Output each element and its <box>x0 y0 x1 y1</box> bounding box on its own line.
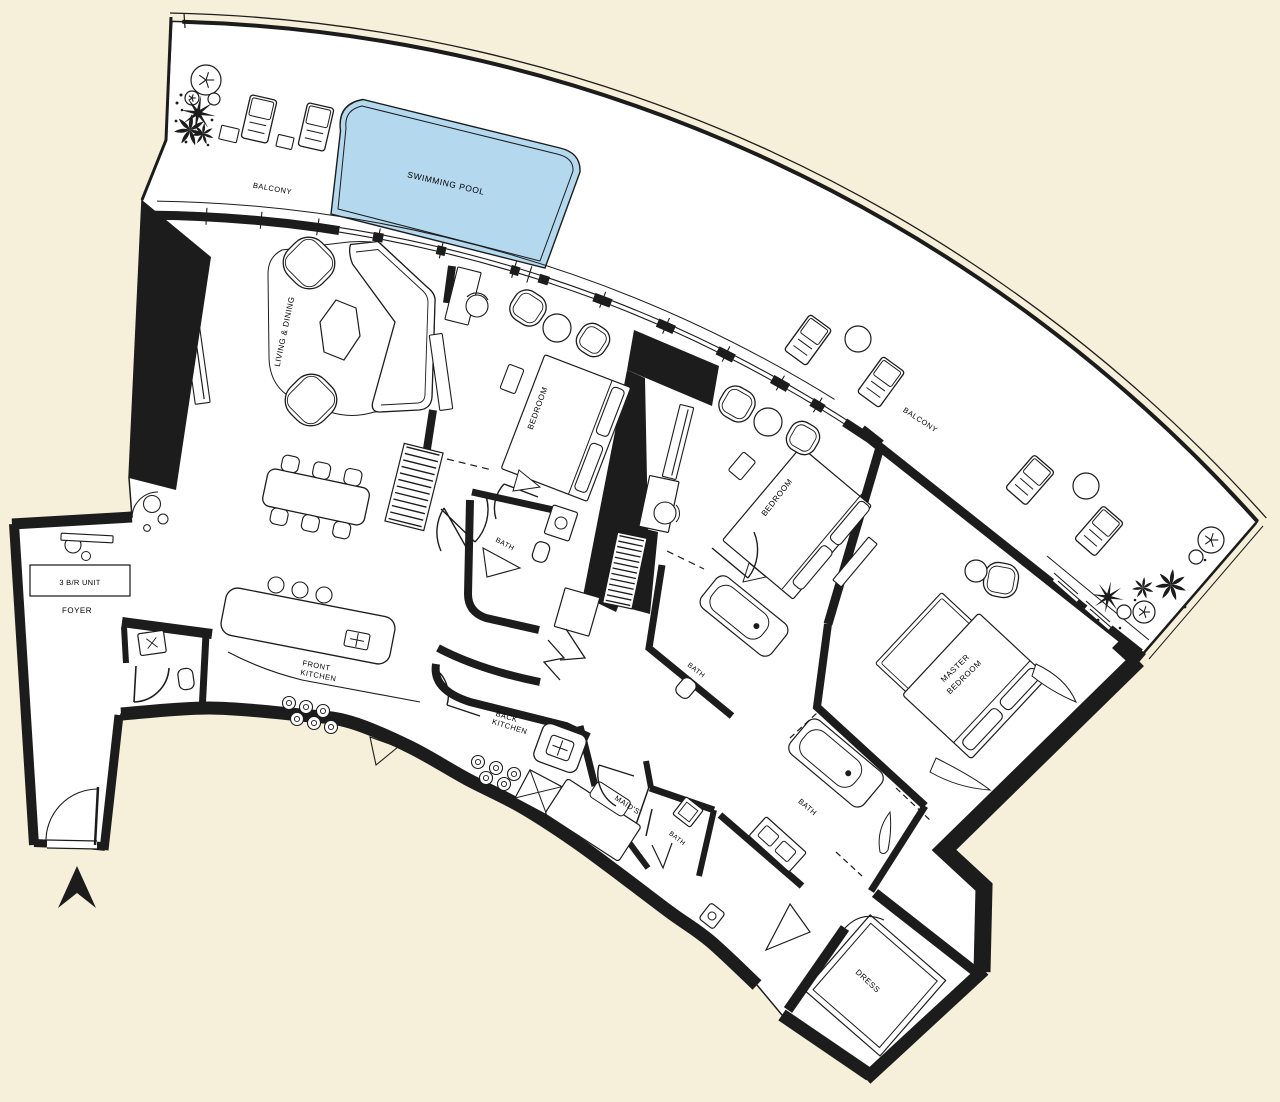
svg-text:3 B/R UNIT: 3 B/R UNIT <box>59 578 100 587</box>
svg-text:FOYER: FOYER <box>62 606 92 615</box>
